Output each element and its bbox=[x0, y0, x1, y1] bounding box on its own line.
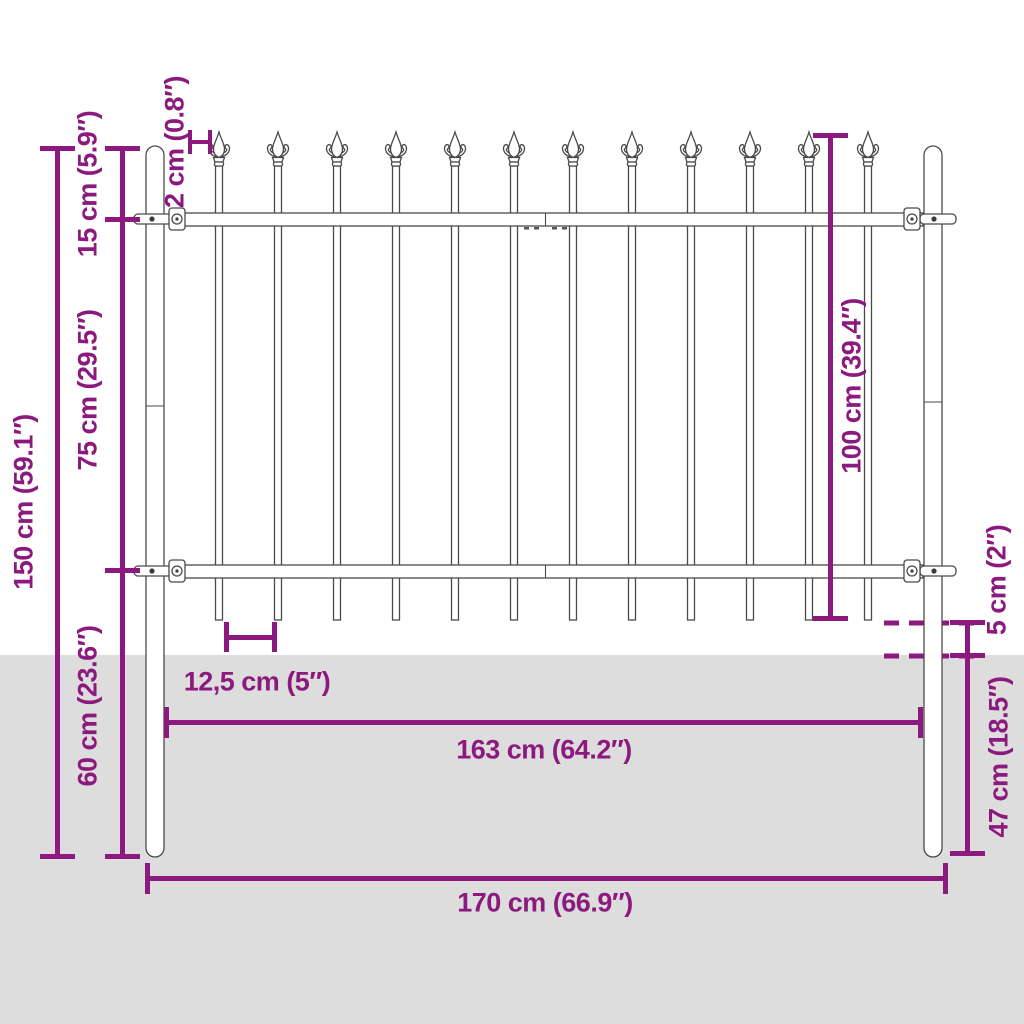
dim-line-panel-height bbox=[828, 135, 833, 619]
dim-tick bbox=[40, 854, 75, 859]
screw bbox=[931, 568, 936, 573]
splice-mark bbox=[552, 227, 557, 230]
dim-tick bbox=[950, 851, 985, 856]
right-post bbox=[924, 146, 942, 857]
picket bbox=[209, 132, 230, 620]
label-buried-depth: 47 cm (18.5″) bbox=[986, 676, 1013, 837]
picket bbox=[622, 132, 643, 620]
dim-line-overall-width bbox=[147, 876, 948, 881]
label-overall-height: 150 cm (59.1″) bbox=[11, 414, 38, 590]
dim-tick bbox=[105, 146, 140, 151]
picket bbox=[681, 132, 702, 620]
dim-tick bbox=[943, 863, 948, 894]
fence-illustration bbox=[0, 0, 1024, 1024]
dim-tick bbox=[40, 146, 75, 151]
dim-tick bbox=[208, 130, 212, 154]
diagram-canvas: 150 cm (59.1″) 15 cm (5.9″) 75 cm (29.5″… bbox=[0, 0, 1024, 1024]
dim-tick bbox=[105, 854, 140, 859]
top-rail bbox=[170, 213, 923, 226]
screw bbox=[149, 568, 154, 573]
strap bbox=[920, 214, 956, 224]
label-panel-width: 163 cm (64.2″) bbox=[456, 737, 632, 764]
picket bbox=[740, 132, 761, 620]
screw bbox=[910, 569, 913, 572]
dim-tick bbox=[105, 217, 140, 222]
screw bbox=[149, 216, 154, 221]
dim-line-overall-height bbox=[55, 148, 60, 857]
dim-tick bbox=[813, 616, 848, 621]
dim-tick bbox=[950, 620, 985, 625]
label-overall-width: 170 cm (66.9″) bbox=[457, 890, 633, 917]
label-panel-height: 100 cm (39.4″) bbox=[839, 298, 866, 474]
dim-tick bbox=[813, 133, 848, 138]
dim-tick bbox=[145, 863, 150, 894]
screw bbox=[175, 569, 178, 572]
picket bbox=[445, 132, 466, 620]
dim-tick bbox=[105, 568, 140, 573]
dim-line-panel-width bbox=[166, 720, 923, 725]
picket bbox=[563, 132, 584, 620]
label-section-bottom: 60 cm (23.6″) bbox=[75, 625, 102, 786]
dim-tick bbox=[164, 707, 169, 738]
left-post bbox=[146, 146, 164, 857]
screw bbox=[175, 217, 178, 220]
splice-mark bbox=[534, 227, 539, 230]
picket bbox=[799, 132, 820, 620]
dim-tick bbox=[272, 622, 277, 652]
dim-tick bbox=[950, 653, 985, 658]
picket bbox=[504, 132, 525, 620]
label-spear-width: 2 cm (0.8″) bbox=[162, 76, 189, 208]
dim-line-sections bbox=[120, 148, 125, 857]
label-section-top: 15 cm (5.9″) bbox=[75, 111, 102, 258]
label-ground-clearance: 5 cm (2″) bbox=[984, 525, 1011, 635]
dim-tick bbox=[224, 622, 229, 652]
picket bbox=[386, 132, 407, 620]
screw bbox=[931, 216, 936, 221]
splice-mark bbox=[524, 227, 529, 230]
pickets bbox=[209, 132, 879, 620]
label-section-middle: 75 cm (29.5″) bbox=[75, 309, 102, 470]
bottom-rail bbox=[170, 565, 923, 578]
screw bbox=[910, 217, 913, 220]
picket bbox=[327, 132, 348, 620]
splice-mark bbox=[562, 227, 567, 230]
dim-tick bbox=[918, 707, 923, 738]
strap bbox=[920, 566, 956, 576]
dim-line-picket-spacing bbox=[226, 635, 277, 640]
picket bbox=[268, 132, 289, 620]
label-picket-spacing: 12,5 cm (5″) bbox=[184, 669, 331, 696]
